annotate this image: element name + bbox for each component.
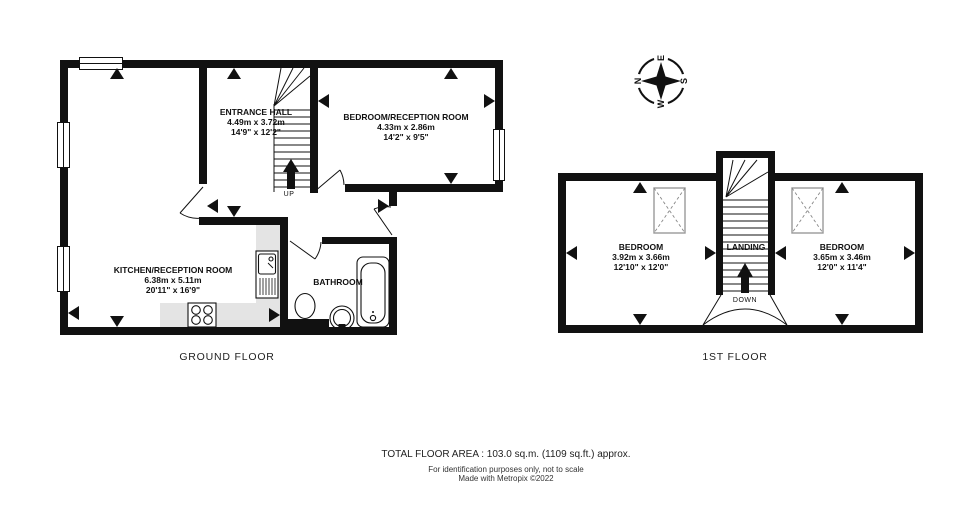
room-label-bedroom-right: BEDROOM 3.65m x 3.46m 12'0" x 11'4" [813, 242, 871, 272]
measure-arrow-right [904, 246, 915, 260]
room-name: ENTRANCE HALL [220, 107, 292, 117]
stair-label-down: DOWN [733, 297, 757, 304]
bathroom-fixtures [287, 257, 389, 330]
room-name: BEDROOM [612, 242, 670, 252]
measure-arrow-down [110, 316, 124, 327]
measure-arrow-left [775, 246, 786, 260]
door-bathroom [290, 241, 321, 259]
footer-disclaimer: For identification purposes only, not to… [428, 465, 584, 474]
measure-arrow-up [835, 182, 849, 193]
wall [775, 173, 923, 181]
wall [199, 60, 207, 184]
wall [768, 151, 775, 295]
compass-south: S [679, 78, 689, 84]
skylight [792, 188, 823, 233]
wall [60, 327, 397, 335]
door-hall-kitchen [180, 187, 203, 218]
down-arrow-icon [737, 263, 753, 293]
measure-arrow-up [444, 68, 458, 79]
room-dim-imperial: 12'10" x 12'0" [612, 262, 670, 272]
toilet [295, 294, 315, 319]
compass-rose: N E S W [631, 51, 691, 111]
measure-arrow-right [484, 94, 495, 108]
room-dim-imperial: 14'9" x 12'2" [220, 127, 292, 137]
footer-credit: Made with Metropix ©2022 [458, 474, 553, 483]
room-label-kitchen-reception: KITCHEN/RECEPTION ROOM 6.38m x 5.11m 20'… [114, 265, 233, 295]
floorplan-canvas: N E S W [0, 0, 980, 515]
measure-arrow-down [227, 206, 241, 217]
room-label-bedroom-left: BEDROOM 3.92m x 3.66m 12'10" x 12'0" [612, 242, 670, 272]
kitchen-sink [256, 251, 278, 298]
measure-arrow-up [633, 182, 647, 193]
room-dim-imperial: 20'11" x 16'9" [114, 285, 233, 295]
room-name: BATHROOM [313, 277, 362, 287]
wall [310, 60, 318, 193]
door-hall-bedroom [314, 170, 344, 192]
compass-west: W [656, 99, 666, 108]
measure-arrow-right [269, 308, 280, 322]
measure-arrow-down [633, 314, 647, 325]
measure-arrow-left [207, 199, 218, 213]
wall [389, 237, 397, 330]
wall [558, 173, 716, 181]
floor-label-ground: GROUND FLOOR [179, 351, 274, 363]
wall [558, 325, 923, 333]
skylights [654, 188, 823, 233]
compass-east: E [656, 55, 666, 61]
up-arrow-icon [283, 159, 299, 189]
room-name: LANDING [727, 242, 766, 252]
room-name: KITCHEN/RECEPTION ROOM [114, 265, 233, 275]
room-dim-metric: 6.38m x 5.11m [114, 275, 233, 285]
measure-arrow-left [318, 94, 329, 108]
bathtub [357, 257, 389, 327]
measure-arrow-right [705, 246, 716, 260]
room-dim-metric: 3.65m x 3.46m [813, 252, 871, 262]
room-name: BEDROOM [813, 242, 871, 252]
wall [345, 184, 503, 192]
window [493, 129, 505, 181]
room-dim-imperial: 14'2" x 9'5" [343, 132, 468, 142]
room-dim-metric: 3.92m x 3.66m [612, 252, 670, 262]
room-label-bathroom: BATHROOM [313, 277, 362, 287]
wall [322, 237, 394, 244]
measure-arrow-right [378, 199, 389, 213]
room-dim-metric: 4.49m x 3.72m [220, 117, 292, 127]
room-label-entrance-hall: ENTRANCE HALL 4.49m x 3.72m 14'9" x 12'2… [220, 107, 292, 137]
room-label-bedroom-reception: BEDROOM/RECEPTION ROOM 4.33m x 2.86m 14'… [343, 112, 468, 142]
wall [60, 60, 68, 335]
wall [716, 151, 723, 295]
wall [199, 217, 288, 225]
wall [389, 192, 397, 206]
window [57, 122, 70, 168]
wall [60, 60, 503, 68]
room-name: BEDROOM/RECEPTION ROOM [343, 112, 468, 122]
measure-arrow-up [227, 68, 241, 79]
stair-label-up: UP [284, 191, 295, 198]
measure-arrow-down [444, 173, 458, 184]
wall [558, 173, 566, 333]
compass-star-icon [641, 62, 681, 100]
measure-arrow-up [110, 68, 124, 79]
room-label-landing: LANDING [727, 242, 766, 252]
room-dim-metric: 4.33m x 2.86m [343, 122, 468, 132]
wall [716, 151, 775, 158]
stove [188, 303, 216, 327]
wall [915, 173, 923, 333]
window [57, 246, 70, 292]
room-dim-imperial: 12'0" x 11'4" [813, 262, 871, 272]
measure-arrow-left [68, 306, 79, 320]
wall [280, 222, 288, 327]
skylight [654, 188, 685, 233]
measure-arrow-down [835, 314, 849, 325]
footer-total-area: TOTAL FLOOR AREA : 103.0 sq.m. (1109 sq.… [381, 449, 630, 460]
measure-arrow-left [566, 246, 577, 260]
floor-label-first: 1ST FLOOR [702, 351, 767, 363]
compass-north: N [633, 78, 643, 85]
